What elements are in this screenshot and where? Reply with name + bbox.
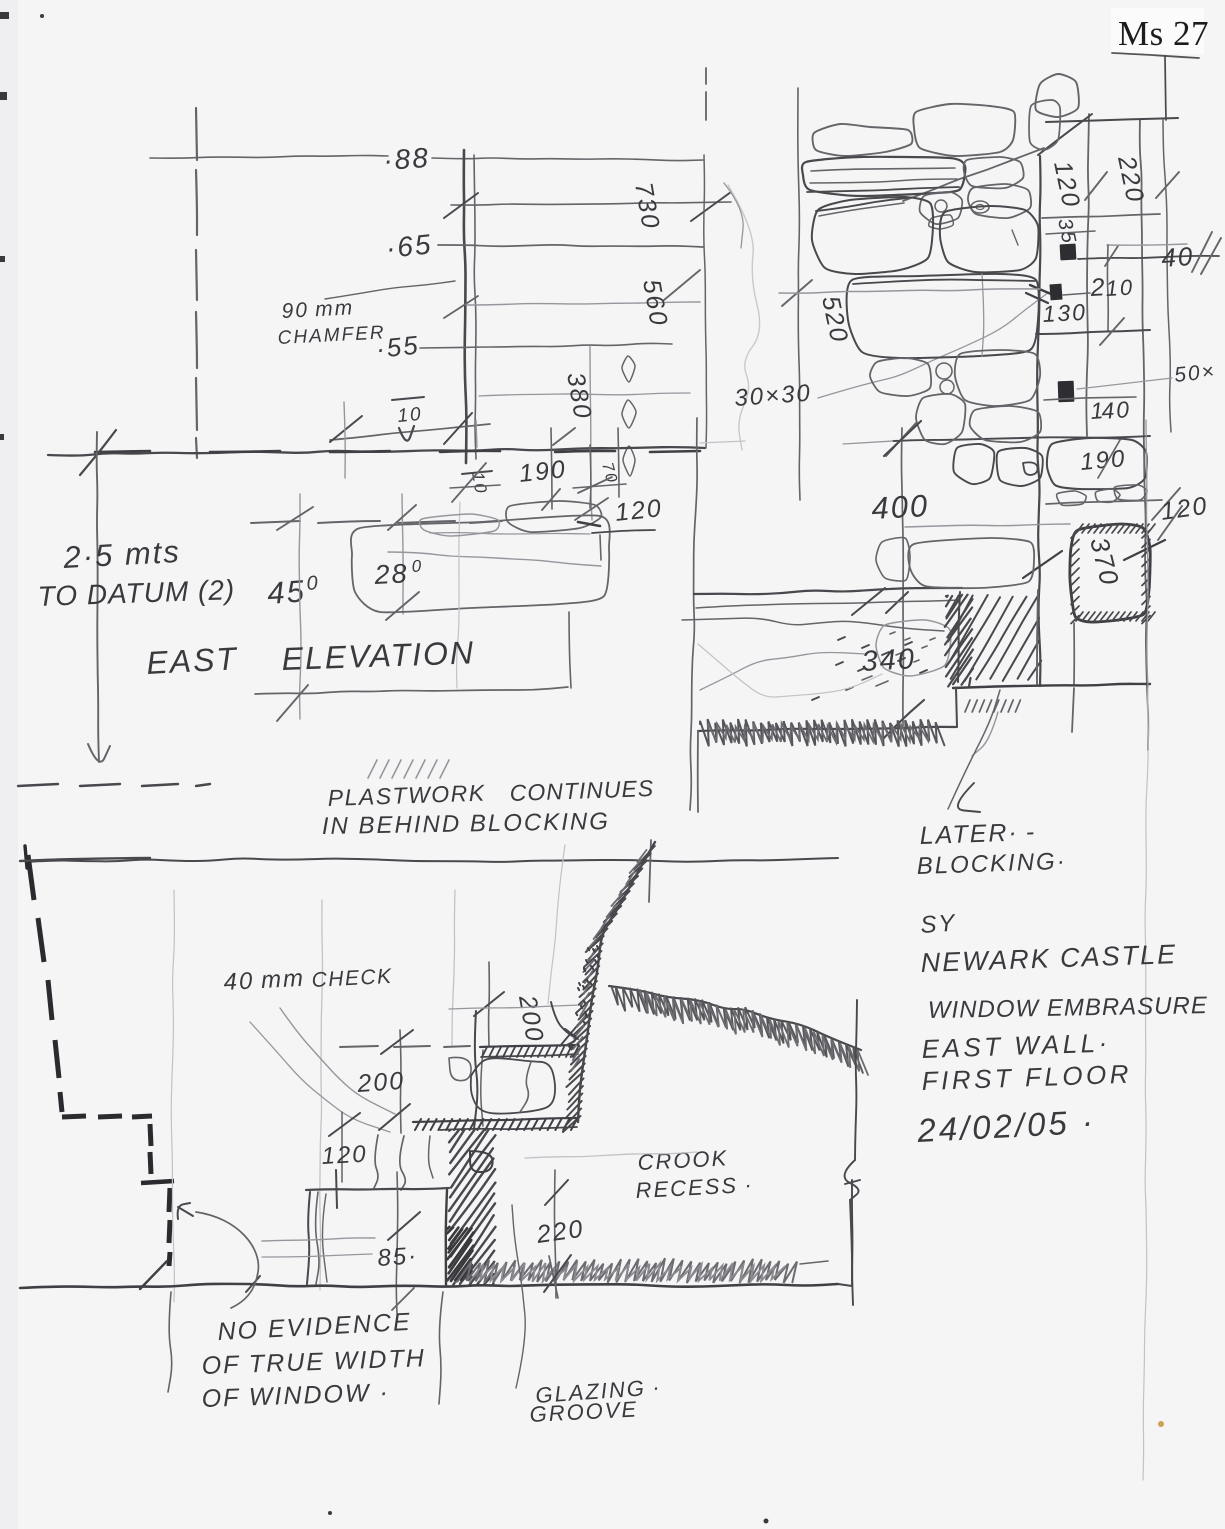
svg-text:40 mm: 40 mm xyxy=(223,965,306,996)
svg-text:IN BEHIND BLOCKING: IN BEHIND BLOCKING xyxy=(322,808,610,840)
svg-text:SY: SY xyxy=(920,910,958,939)
svg-text:120: 120 xyxy=(321,1141,368,1170)
svg-text:340: 340 xyxy=(861,643,917,678)
svg-text:·65: ·65 xyxy=(384,228,433,264)
svg-text:190: 190 xyxy=(518,455,568,488)
svg-text:2·5 mts: 2·5 mts xyxy=(62,534,182,575)
svg-text:10: 10 xyxy=(397,404,424,427)
svg-text:190: 190 xyxy=(1079,445,1127,476)
svg-text:45: 45 xyxy=(266,573,307,611)
svg-text:CONTINUES: CONTINUES xyxy=(509,775,654,806)
svg-text:0: 0 xyxy=(411,556,423,576)
svg-text:BLOCKING·: BLOCKING· xyxy=(916,848,1067,880)
svg-text:90 mm: 90 mm xyxy=(281,296,355,323)
svg-text:EAST: EAST xyxy=(145,640,239,681)
svg-text:50×: 50× xyxy=(1173,360,1217,387)
svg-text:40: 40 xyxy=(1160,241,1195,273)
svg-text:120: 120 xyxy=(614,494,664,527)
svg-text:40: 40 xyxy=(1101,396,1132,424)
svg-text:30×30: 30×30 xyxy=(734,380,813,412)
svg-text:28: 28 xyxy=(373,558,410,590)
svg-text:CHECK: CHECK xyxy=(311,965,393,992)
svg-text:0: 0 xyxy=(306,572,321,595)
svg-text:10: 10 xyxy=(468,470,491,496)
svg-text:Ms 27: Ms 27 xyxy=(1118,14,1209,53)
svg-text:·55: ·55 xyxy=(374,330,420,364)
svg-text:WINDOW EMBRASURE: WINDOW EMBRASURE xyxy=(928,992,1208,1024)
svg-text:LATER· -: LATER· - xyxy=(919,818,1036,850)
svg-text:130: 130 xyxy=(1042,299,1088,327)
svg-text:PLASTWORK: PLASTWORK xyxy=(327,779,486,811)
svg-text:200: 200 xyxy=(355,1067,406,1098)
svg-text:85·: 85· xyxy=(377,1242,419,1272)
svg-text:CROOK: CROOK xyxy=(637,1145,729,1175)
svg-text:10: 10 xyxy=(1105,275,1135,301)
svg-text:·88: ·88 xyxy=(382,142,431,176)
svg-text:ELEVATION: ELEVATION xyxy=(281,634,476,677)
svg-text:400: 400 xyxy=(871,488,930,526)
